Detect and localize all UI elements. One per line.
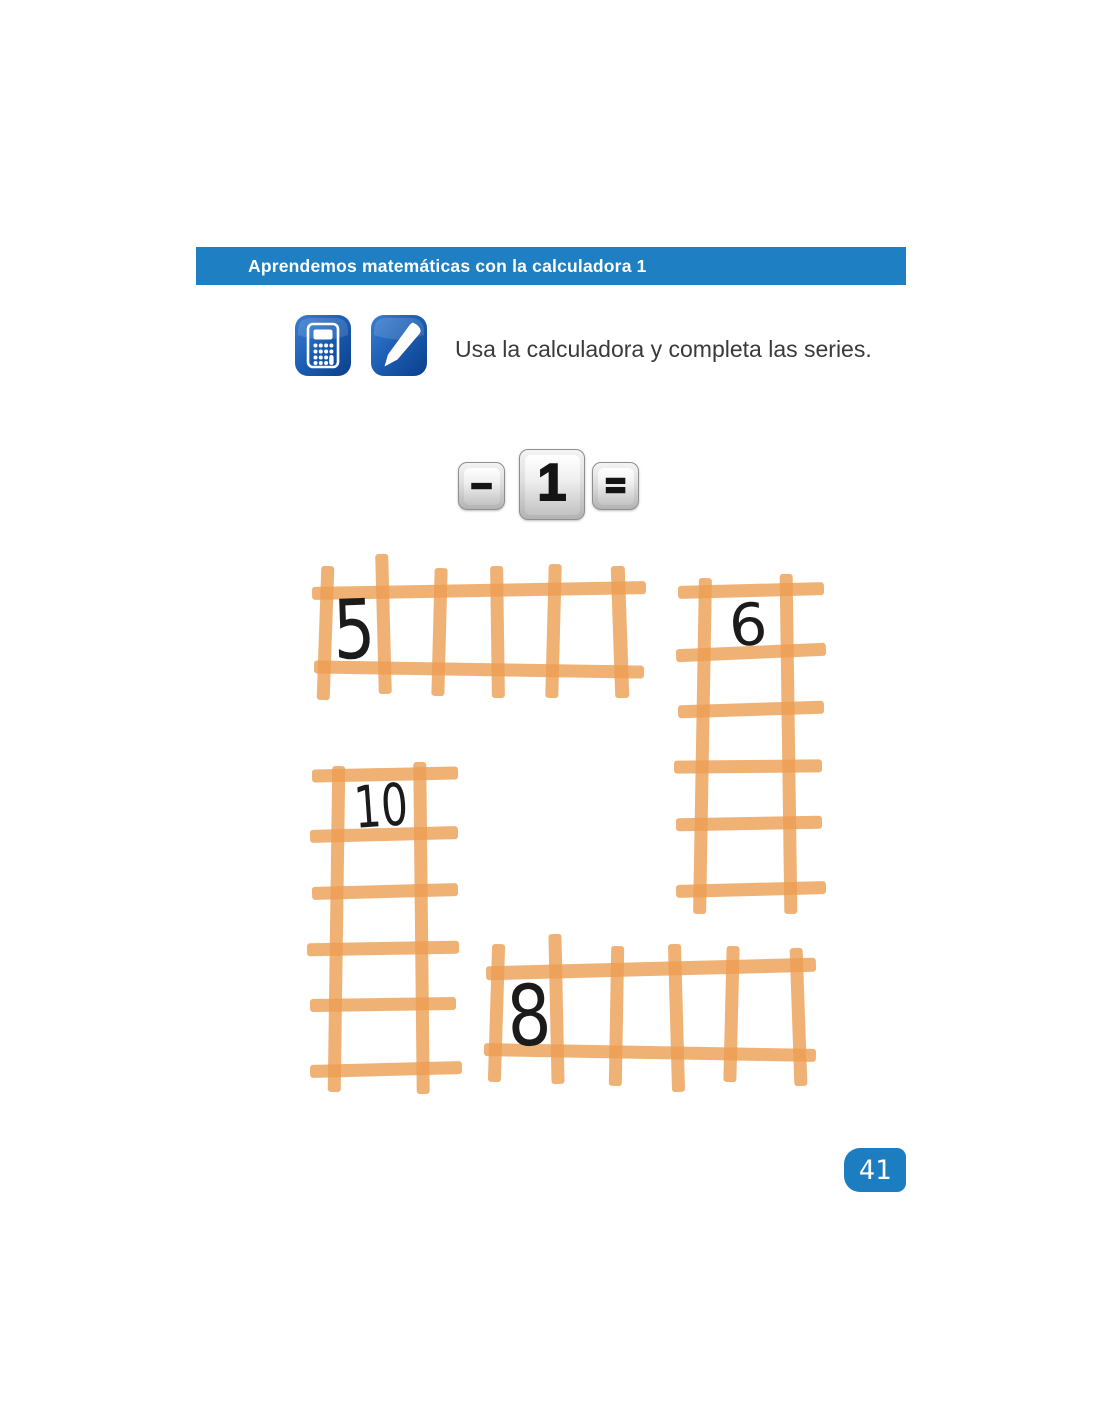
equals-key: =: [592, 462, 639, 510]
page-title: Aprendemos matemáticas con la calculador…: [196, 256, 647, 277]
ladder-top-left: 5: [306, 552, 650, 704]
equals-key-label: =: [606, 469, 626, 503]
ladder-bottom-right: 8: [478, 932, 818, 1098]
minus-key-label: −: [471, 468, 492, 504]
pencil-icon: [370, 314, 428, 377]
ladder-top-right: 6: [666, 570, 832, 920]
page-number-badge: 41: [844, 1148, 906, 1192]
header-bar: Aprendemos matemáticas con la calculador…: [196, 247, 906, 285]
page-number: 41: [859, 1155, 892, 1186]
minus-key-face: −: [464, 468, 500, 505]
calculator-icon: [294, 314, 352, 377]
one-key-face: 1: [525, 455, 580, 515]
ladder-middle-left: 10: [302, 756, 462, 1096]
one-key-label: 1: [538, 457, 567, 513]
one-key: 1: [519, 449, 585, 520]
handwritten-number-5: 5: [331, 582, 376, 678]
minus-key: −: [458, 462, 505, 510]
instruction-text: Usa la calculadora y completa las series…: [455, 336, 872, 363]
handwritten-number-8: 8: [505, 966, 554, 1066]
workbook-page: Aprendemos matemáticas con la calculador…: [0, 0, 1100, 1422]
handwritten-number-6: 6: [726, 589, 770, 660]
handwritten-number-10: 10: [352, 770, 411, 842]
equals-key-face: =: [598, 468, 634, 505]
